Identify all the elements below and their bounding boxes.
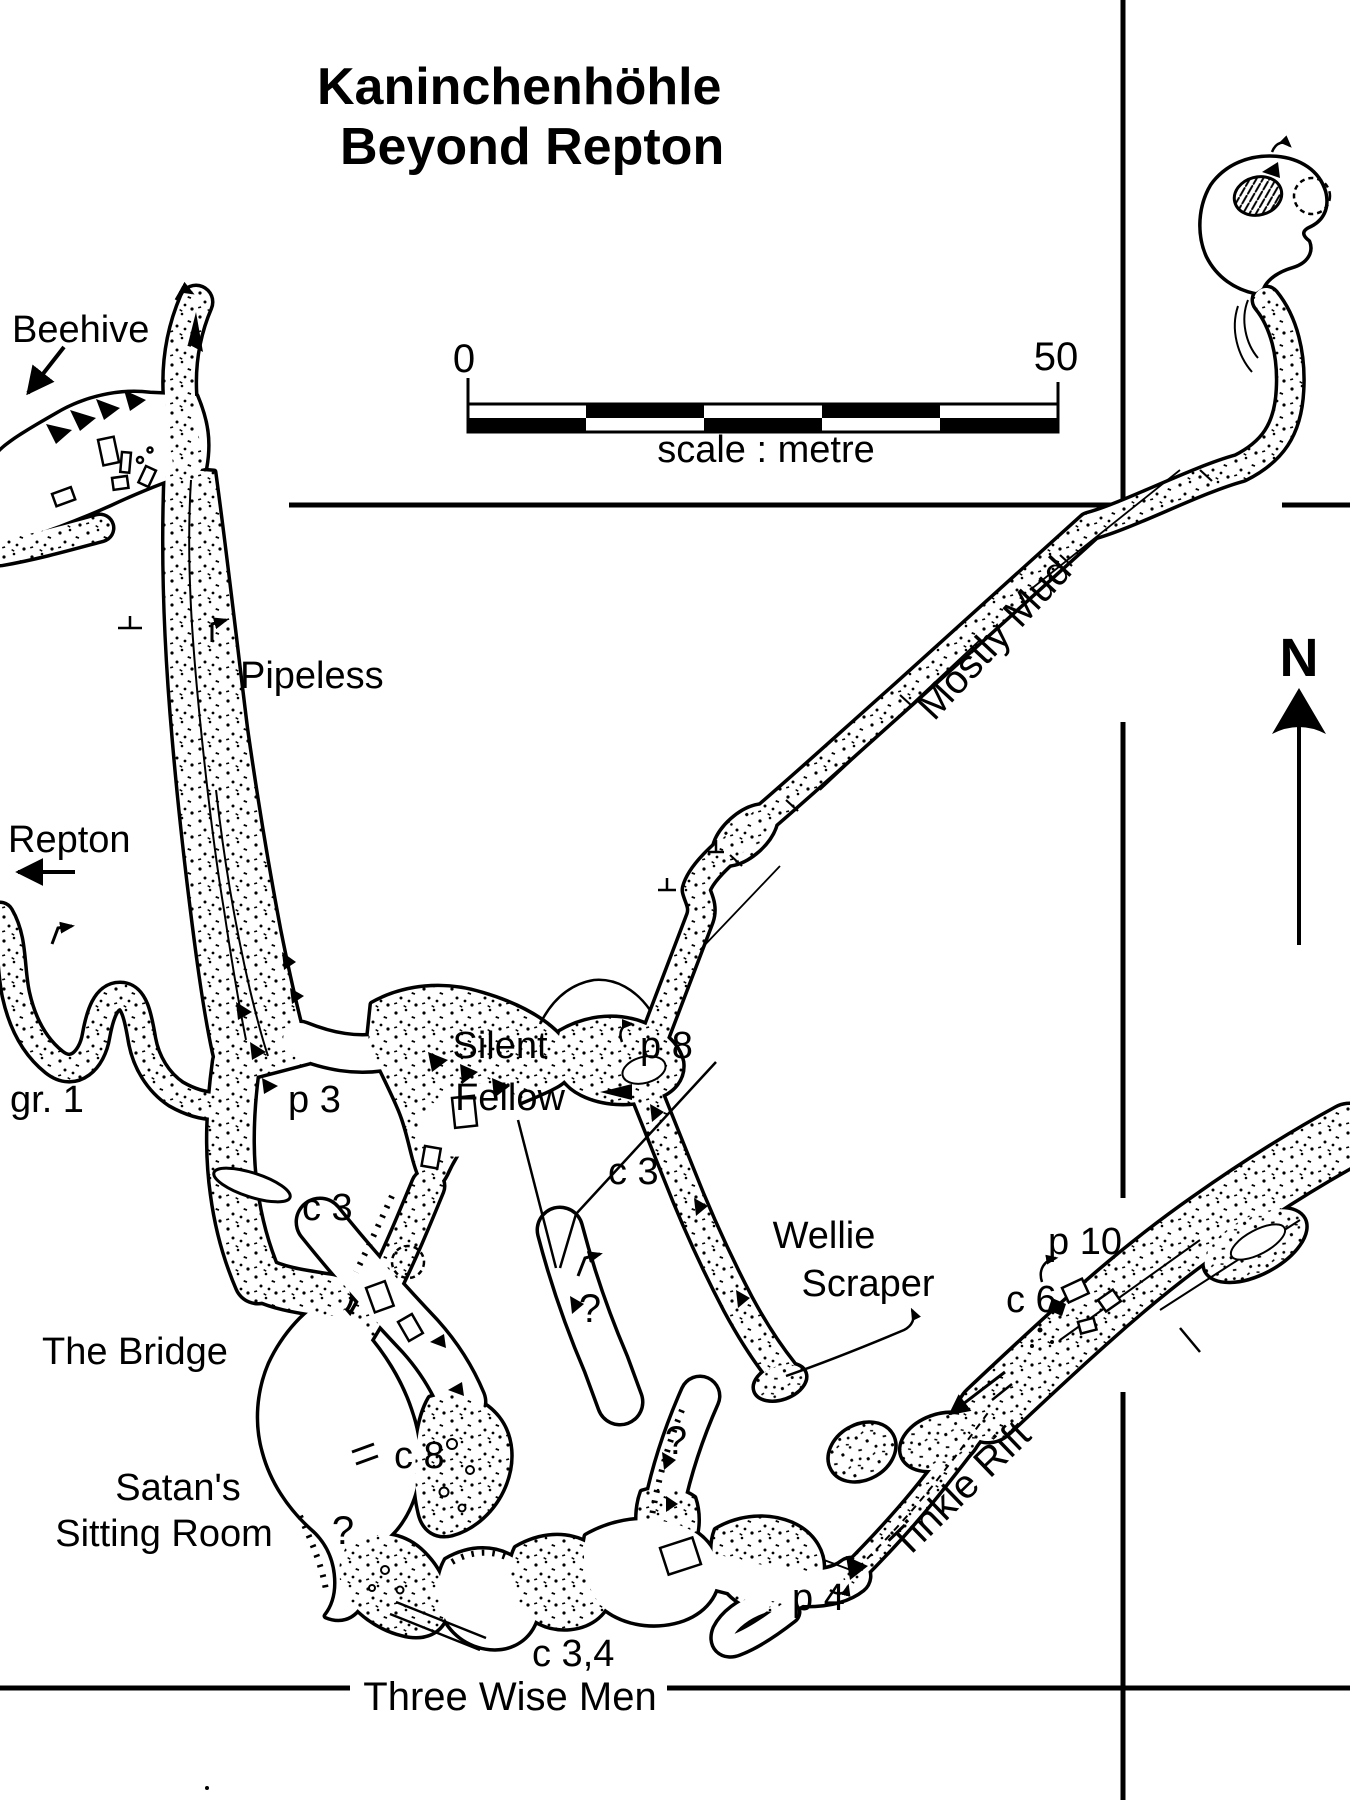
climb-line [518, 1120, 556, 1268]
station-mark-icon [658, 878, 676, 890]
meander-hook-icon [52, 926, 72, 944]
scale-bar: 0 50 scale : metre [453, 335, 1078, 471]
north-arrow: N [1272, 628, 1326, 945]
north-label: N [1280, 628, 1319, 688]
label-p4: p 4 [792, 1577, 845, 1619]
entrance-hook-icon [1272, 143, 1290, 152]
label-gr1: gr. 1 [10, 1079, 84, 1121]
cave-survey-map: Kaninchenhöhle Beyond Repton 0 50 scale … [0, 0, 1350, 1800]
inner-wall-line [1235, 300, 1258, 372]
title-block: Kaninchenhöhle Beyond Repton [317, 58, 724, 176]
label-c8: c 8 [394, 1435, 445, 1477]
label-p3: p 3 [288, 1079, 341, 1121]
question-mark-satans: ? [332, 1509, 354, 1553]
label-repton: Repton [8, 819, 131, 861]
label-p8: p 8 [640, 1025, 693, 1067]
map-title-line1: Kaninchenhöhle [317, 58, 721, 116]
label-wellie-line1: Wellie [773, 1215, 876, 1257]
label-beehive: Beehive [12, 309, 149, 351]
label-wellie-line2: Scraper [801, 1263, 934, 1305]
scale-bar-cells [468, 404, 1058, 432]
label-the-bridge: The Bridge [42, 1331, 228, 1373]
label-satans-line1: Satan's [115, 1467, 241, 1509]
scale-start-label: 0 [453, 337, 475, 381]
label-c34: c 3,4 [532, 1633, 614, 1675]
survey-dot [205, 1786, 209, 1790]
label-silent-line1: Silent [452, 1025, 547, 1067]
beehive-pointer-arrow [28, 347, 64, 393]
survey-drawing: Kaninchenhöhle Beyond Repton 0 50 scale … [0, 0, 1350, 1800]
label-p10: p 10 [1048, 1221, 1122, 1263]
label-three-wise-men: Three Wise Men [363, 1675, 656, 1719]
label-pipeless: Pipeless [240, 655, 384, 697]
question-mark-wellie: ? [665, 1419, 687, 1463]
label-mostly-mud: Mostly Mud [908, 549, 1080, 729]
station-mark-icon [118, 616, 142, 628]
label-c3-silent: c 3 [608, 1151, 659, 1193]
rift-return-wall-line [786, 1310, 914, 1376]
label-c6: c 6 [1006, 1279, 1057, 1321]
scale-caption: scale : metre [657, 429, 875, 471]
spur-line [1180, 1328, 1200, 1352]
scale-end-label: 50 [1034, 335, 1079, 379]
question-mark-middle: ? [579, 1287, 601, 1331]
map-title-line2: Beyond Repton [340, 118, 724, 176]
label-c3-upper: c 3 [302, 1187, 353, 1229]
label-satans-line2: Sitting Room [55, 1513, 273, 1555]
label-silent-line2: Fellow [455, 1077, 565, 1119]
